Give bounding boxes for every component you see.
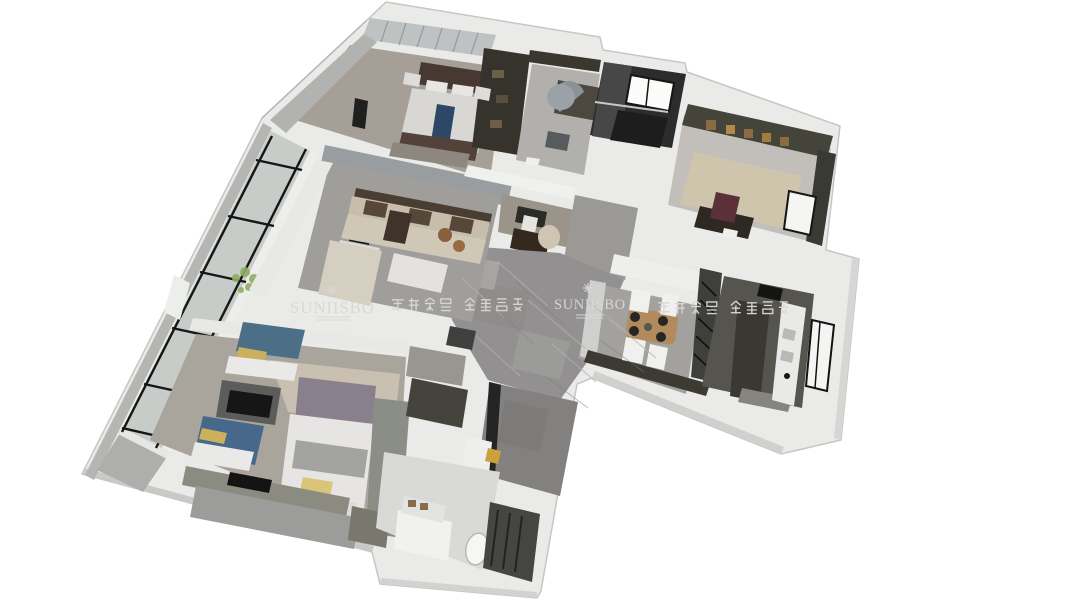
svg-text:SUNIISBO: SUNIISBO	[554, 297, 626, 313]
svg-text:SUNIISBO: SUNIISBO	[290, 298, 375, 317]
